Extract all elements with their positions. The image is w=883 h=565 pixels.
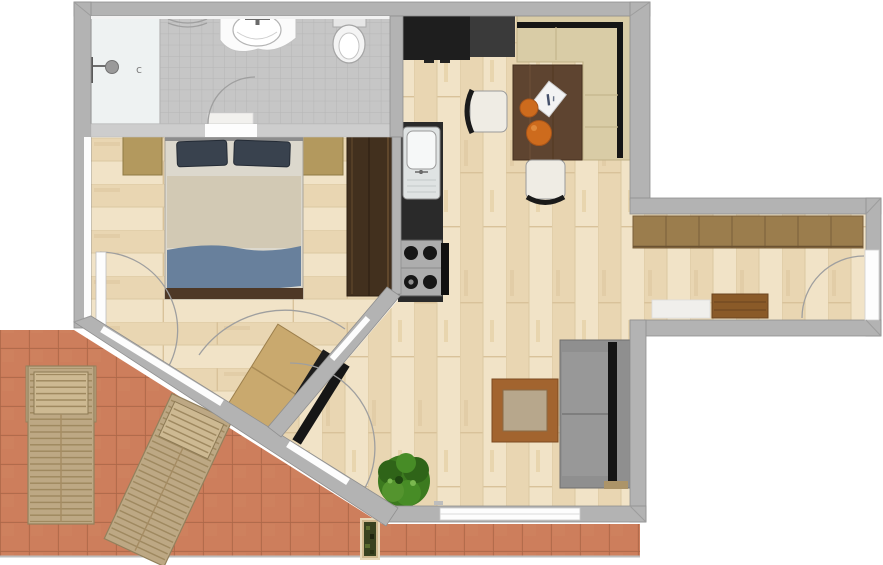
shower-drain-mark: c [136, 63, 142, 76]
hall-wardrobe-body [633, 216, 863, 248]
bedroom-wardrobe [347, 133, 392, 296]
wall-hall-bottom [630, 320, 881, 336]
oven-handle [441, 243, 449, 295]
nightstand-right [303, 135, 343, 175]
chair-seat [470, 91, 507, 132]
burner [404, 246, 418, 260]
coffee-table [492, 379, 558, 442]
planter-box [361, 519, 379, 559]
wall-right-upper [630, 2, 650, 200]
double-bed [165, 135, 303, 299]
entry-bench [712, 294, 768, 318]
burner [423, 275, 437, 289]
sofa-stripe [608, 342, 617, 486]
wall-right-lower [630, 320, 646, 522]
orange-small [520, 99, 538, 117]
bath-mat [208, 113, 253, 125]
wall-top [74, 2, 650, 16]
kitchen-counter-black [398, 16, 470, 60]
bed-throw [167, 245, 301, 290]
bathroom-door-opening [205, 124, 257, 137]
shower-tray [91, 17, 160, 124]
entrance-door-opening [865, 250, 879, 320]
lounger-backrest-slats [36, 374, 86, 412]
burner [423, 246, 437, 260]
toilet [333, 16, 366, 63]
kitchen-sink [403, 127, 440, 199]
terrace-door-leaf [96, 252, 106, 330]
bed-footboard [165, 288, 303, 299]
shower-head-icon [106, 61, 119, 74]
chair-left [467, 90, 507, 133]
wall-hall-top [630, 198, 881, 214]
kitchen-counter-dark [470, 16, 515, 57]
corner-sofa [560, 340, 630, 489]
orange-large [527, 121, 552, 146]
wall-bath-kitchen [390, 16, 403, 137]
floor-plan-page: c [0, 0, 883, 565]
wardrobe-row [633, 216, 863, 248]
chair-seat [526, 160, 565, 199]
bed-blanket [167, 176, 301, 248]
sink-bowl [407, 131, 436, 169]
wall-bedroom-kitchen [392, 137, 401, 294]
counter-handle-2 [440, 60, 450, 63]
left-wall-window-sill [84, 137, 91, 322]
counter-handle [424, 60, 434, 63]
pillow-left [177, 140, 228, 167]
window-latch [434, 501, 443, 505]
bath-wall-trim [91, 16, 390, 19]
nightstand-left [123, 135, 162, 175]
chair-bottom [526, 160, 565, 203]
floor-plan-canvas: c [0, 0, 883, 565]
potted-plant [378, 453, 430, 507]
coffee-table-inset [503, 390, 547, 431]
stove [399, 240, 449, 296]
pillow-right [234, 140, 291, 167]
sofa-base-trim [604, 481, 628, 489]
sun-lounger-straight [26, 366, 96, 524]
door-mat [652, 300, 710, 318]
